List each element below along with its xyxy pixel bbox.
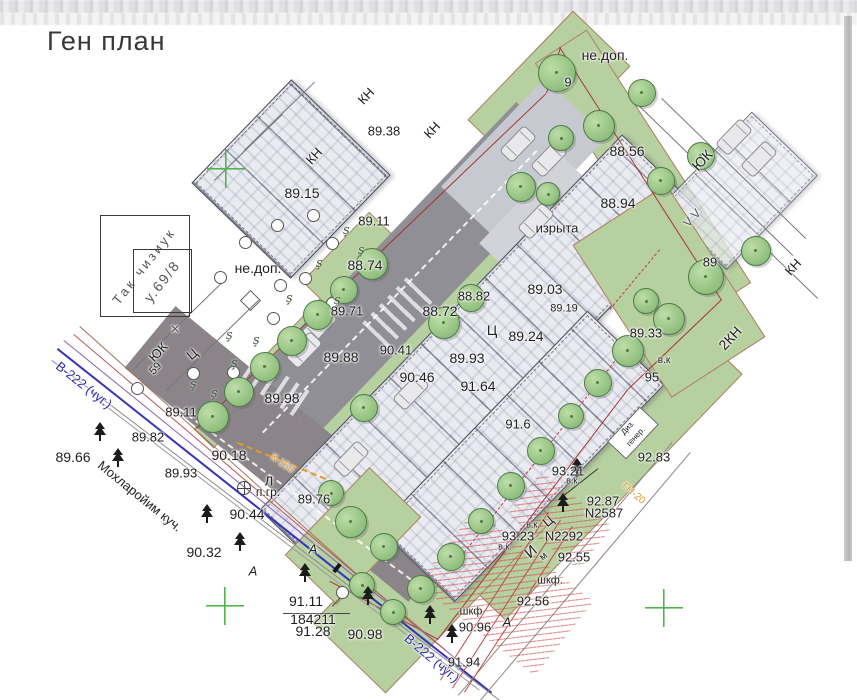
- elevation-label: 92.56: [517, 595, 550, 608]
- stamp-box-inner: [133, 249, 192, 313]
- tree-icon: [536, 182, 560, 206]
- plan-label: ×: [170, 322, 179, 338]
- plan-label: в.к.: [498, 543, 512, 552]
- tree-icon: [350, 394, 378, 422]
- tree-icon: [527, 437, 555, 465]
- survey-circle-icon: [336, 586, 349, 599]
- elevation-label: 89.33: [630, 327, 663, 340]
- elevation-label: 89: [703, 256, 717, 269]
- survey-station-icon: [240, 290, 261, 311]
- plan-label: шкф.: [537, 576, 563, 587]
- tree-icon: [497, 472, 525, 500]
- survey-circle-icon: [267, 312, 280, 325]
- elevation-label: 88.72: [422, 304, 457, 318]
- elevation-label: 89.24: [508, 329, 543, 343]
- elevation-label: 89.11: [358, 215, 390, 228]
- tree-icon: [506, 172, 536, 202]
- plan-label: А: [309, 543, 318, 556]
- elevation-label: 90.44: [229, 507, 264, 521]
- elevation-label: 89.88: [323, 350, 358, 364]
- elevation-label: 90.46: [399, 370, 434, 384]
- elevation-label: 88.56: [609, 144, 644, 158]
- tree-icon: [558, 403, 584, 429]
- elevation-label: 89.15: [284, 186, 319, 200]
- plan-label: в.к: [658, 356, 670, 366]
- elevation-label: 89.76: [298, 493, 331, 506]
- bush-icon: ş: [226, 328, 233, 343]
- plan-label: изрыта: [536, 222, 579, 235]
- conifer-icon: [93, 422, 107, 442]
- plan-label: п.гр.: [256, 486, 280, 498]
- conifer-icon: [200, 504, 214, 524]
- plan-label: А: [249, 565, 258, 578]
- bush-icon: ş: [343, 223, 350, 238]
- conifer-icon: [445, 624, 459, 644]
- elevation-label: 89.66: [55, 450, 90, 464]
- tree-icon: [583, 110, 615, 142]
- elevation-label: 89.98: [264, 391, 299, 405]
- tree-icon: [633, 288, 659, 314]
- survey-circle-icon: [271, 219, 284, 232]
- bush-icon: ş: [211, 386, 218, 401]
- tree-icon: [468, 508, 494, 534]
- bush-icon: ş: [358, 243, 365, 258]
- plan-label: в.к.: [526, 521, 540, 530]
- survey-circle-icon: [239, 236, 252, 249]
- bush-icon: ş: [286, 291, 293, 306]
- elevation-label: 91.11: [289, 594, 323, 608]
- elevation-label: 91.6: [505, 418, 530, 431]
- conifer-icon: [361, 586, 375, 606]
- bush-icon: ş: [253, 333, 260, 348]
- elevation-label: 95: [645, 371, 659, 384]
- survey-circle-icon: [307, 209, 320, 222]
- elevation-label: 88.82: [458, 290, 491, 303]
- elevation-label: 89.11: [165, 406, 197, 419]
- elevation-label: 91.28: [295, 624, 330, 638]
- tree-icon: [224, 377, 254, 407]
- conifer-icon: [233, 532, 247, 552]
- elevation-label: 89.38: [368, 125, 401, 138]
- elevation-label: N2587: [585, 507, 623, 520]
- elevation-label: 92.83: [638, 451, 671, 464]
- tree-icon: [741, 236, 771, 266]
- tree-icon: [628, 79, 656, 107]
- tree-icon: [303, 300, 333, 330]
- elevation-label: 88.74: [347, 258, 382, 272]
- plan-label: Ц: [487, 323, 497, 337]
- conifer-icon: [298, 563, 312, 583]
- elevation-label: 91.64: [460, 379, 495, 393]
- plan-label: в.к.: [566, 477, 580, 486]
- elevation-label: 90.96: [459, 621, 492, 634]
- grid-cross-icon: [206, 587, 244, 625]
- elevation-label: 9: [564, 76, 571, 89]
- tree-icon: [277, 326, 307, 356]
- bush-icon: ş: [231, 356, 238, 371]
- elevation-label: 92.55: [558, 551, 591, 564]
- site-plan-layer: şşşşşşşşşşне.доп.9КНКНКН89.3889.15не.доп…: [0, 0, 857, 700]
- elevation-label: N2292: [545, 530, 583, 543]
- plan-label: КН: [782, 256, 803, 277]
- bush-icon: ş: [190, 377, 197, 392]
- plan-label: А: [503, 616, 512, 629]
- tree-icon: [584, 369, 612, 397]
- conifer-icon: [423, 605, 437, 625]
- elevation-label: 88.94: [600, 196, 635, 210]
- bush-icon: ş: [316, 256, 323, 271]
- plan-label: шкф: [460, 607, 483, 618]
- elevation-label: 90.32: [186, 545, 221, 559]
- tree-icon: [250, 352, 280, 382]
- tree-icon: [370, 533, 398, 561]
- plan-label: КН: [421, 119, 442, 140]
- survey-circle-icon: [131, 382, 144, 395]
- survey-circle-icon: [326, 237, 339, 250]
- elevation-label: 91.94: [448, 656, 481, 669]
- elevation-label: 89.93: [449, 351, 484, 365]
- tree-icon: [437, 543, 465, 571]
- tree-icon: [407, 575, 435, 603]
- plan-label: не.доп.: [235, 261, 282, 275]
- elevation-label: 90.18: [211, 448, 246, 462]
- grid-cross-icon: [207, 150, 245, 188]
- survey-point-icon: [237, 481, 251, 495]
- genplan-canvas: Ген план şşşşşşşşşşне.доп.9КНКНКН89.3889…: [0, 0, 857, 700]
- elevation-label: 89.03: [527, 282, 562, 296]
- survey-circle-icon: [299, 272, 312, 285]
- plan-label: КН: [355, 85, 376, 106]
- elevation-label: 89.82: [132, 431, 165, 444]
- grid-cross-icon: [645, 589, 683, 627]
- survey-circle-icon: [214, 271, 227, 284]
- tree-icon: [548, 125, 574, 151]
- plan-label: не.доп.: [582, 48, 629, 62]
- elevation-label: 90.98: [347, 627, 382, 641]
- tree-icon: [380, 599, 406, 625]
- tree-icon: [335, 506, 367, 538]
- conifer-icon: [556, 493, 570, 513]
- elevation-label: 89.93: [165, 467, 198, 480]
- tree-icon: [197, 401, 229, 433]
- elevation-label: 89.19: [550, 304, 578, 315]
- elevation-label: 90.41: [380, 344, 413, 357]
- elevation-label: 89.71: [331, 305, 364, 318]
- tree-icon: [647, 167, 675, 195]
